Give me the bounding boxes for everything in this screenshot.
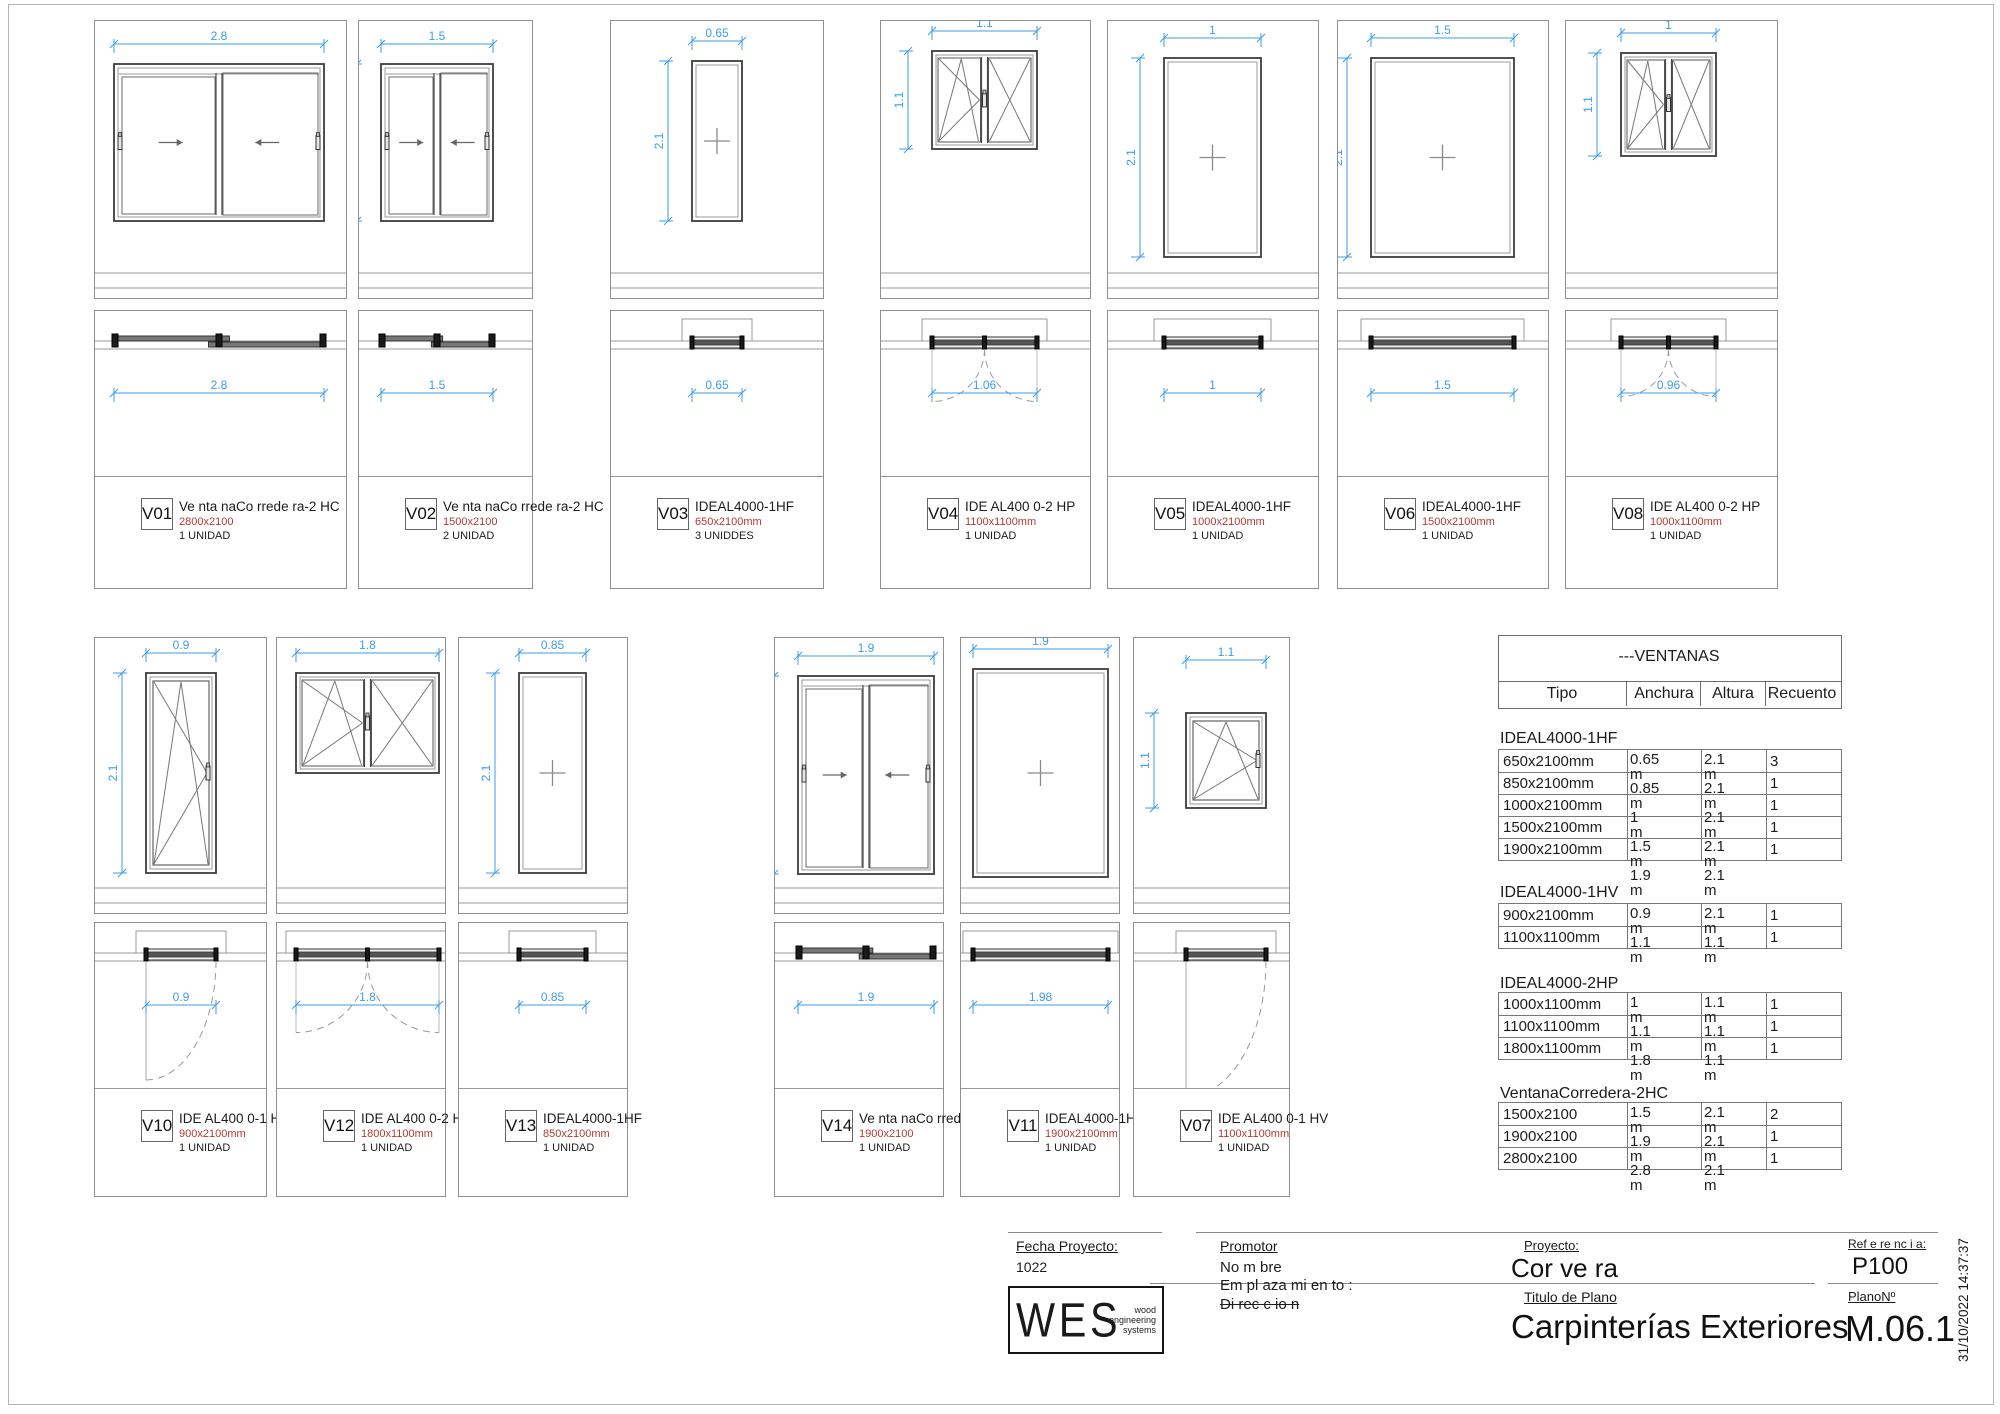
elevation-view-V13: 0.852.1 (458, 637, 628, 914)
tipo-cell: 1100x1100mm (1503, 1018, 1600, 1035)
svg-text:2.1: 2.1 (1338, 149, 1345, 166)
product-size: 1900x2100 (859, 1128, 913, 1140)
tipo-cell: 1100x1100mm (1503, 929, 1600, 946)
plan-view-V04: 1.06V04IDE AL400 0-2 HP1100x1100mm1 UNID… (880, 310, 1091, 589)
logo-tagline-line: engineering (1109, 1315, 1156, 1325)
column-divider (1627, 993, 1628, 1059)
drawing-sheet: 2.82.12.8V01Ve nta naCo rrede ra-2 HC280… (0, 0, 2000, 1414)
svg-text:2.1: 2.1 (1124, 149, 1138, 166)
tipo-cell: 900x2100mm (1503, 907, 1594, 924)
product-name: IDE AL400 0-2 HP (965, 499, 1075, 514)
recuento-cell: 1 (1770, 907, 1778, 924)
product-name: Ve nta naCo rrede ra-2 HC (443, 499, 604, 514)
elevation-view-V05: 12.1 (1107, 20, 1319, 299)
tipo-cell: 1900x2100 (1503, 1128, 1577, 1145)
proyecto-label: Proyecto: (1524, 1238, 1579, 1253)
elevation-view-V11: 1.92.1 (960, 637, 1120, 914)
product-units: 1 UNIDAD (179, 1142, 230, 1154)
row-divider (1499, 816, 1841, 817)
row-divider (1499, 1147, 1841, 1148)
label-divider (611, 476, 823, 477)
label-divider (1134, 1088, 1289, 1089)
panel-tag: V08 (1612, 498, 1644, 530)
product-size: 1800x1100mm (361, 1128, 433, 1140)
referencia-label: Ref e re nc i a: (1848, 1237, 1926, 1251)
elevation-view-V04: 1.11.1 (880, 20, 1091, 299)
column-divider (1701, 993, 1702, 1059)
product-units: 1 UNIDAD (543, 1142, 594, 1154)
svg-text:1.9: 1.9 (858, 990, 875, 1004)
svg-text:0.9: 0.9 (173, 638, 190, 652)
tipo-cell: 2800x2100 (1503, 1150, 1577, 1167)
svg-text:0.85: 0.85 (541, 990, 565, 1004)
recuento-cell: 2 (1770, 1106, 1778, 1123)
svg-text:1.1: 1.1 (1218, 645, 1235, 659)
ventanas-table: ---VENTANAS Tipo Anchura Altura Recuento… (1498, 635, 1842, 1255)
product-units: 2 UNIDAD (443, 530, 494, 542)
plan-view-V03: 0.65V03IDEAL4000-1HF650x2100mm3 UNIDDES (610, 310, 824, 589)
svg-text:1: 1 (1209, 23, 1216, 37)
product-name: Ve nta naCo rrede ra-2 HC (179, 499, 340, 514)
direccion-label: Di rec c io n (1220, 1296, 1299, 1313)
recuento-cell: 1 (1770, 819, 1778, 836)
tipo-cell: 1000x1100mm (1503, 996, 1601, 1013)
wes-logo: WES wood engineering systems (1008, 1286, 1164, 1354)
column-divider (1627, 1103, 1628, 1169)
table-group-name: IDEAL4000-1HV (1500, 884, 1618, 902)
elevation-view-V12: 1.81.1 (276, 637, 446, 914)
titulo-plano-value: Carpinterías Exteriores (1511, 1308, 1848, 1346)
svg-text:1.5: 1.5 (429, 29, 446, 43)
product-size: 1000x2100mm (1192, 516, 1265, 528)
product-size: 900x2100mm (179, 1128, 246, 1140)
table-group-box: 650x2100mm3850x2100mm11000x2100mm11500x2… (1498, 749, 1842, 861)
column-divider (1627, 750, 1628, 860)
row-divider (1499, 926, 1841, 927)
product-name: IDEAL4000-1HF (1192, 499, 1291, 514)
svg-text:0.9: 0.9 (173, 990, 190, 1004)
label-divider (459, 1088, 627, 1089)
timestamp: 31/10/2022 14:37:37 (1956, 1238, 1971, 1362)
product-size: 1900x2100mm (1045, 1128, 1118, 1140)
elevation-view-V08: 11.1 (1565, 20, 1778, 299)
product-name: IDE AL400 0-2 HP (361, 1111, 471, 1126)
svg-text:1.5: 1.5 (1434, 378, 1451, 392)
column-header-anchura: Anchura (1626, 685, 1702, 703)
product-units: 1 UNIDAD (361, 1142, 412, 1154)
product-units: 1 UNIDAD (1045, 1142, 1096, 1154)
recuento-cell: 1 (1770, 996, 1778, 1013)
panel-tag: V11 (1007, 1110, 1039, 1142)
panel-tag: V06 (1384, 498, 1416, 530)
plano-numero-label: PlanoNº (1848, 1289, 1895, 1304)
recuento-cell: 1 (1770, 841, 1778, 858)
product-units: 1 UNIDAD (1422, 530, 1473, 542)
column-divider (1766, 750, 1767, 860)
fecha-proyecto-value: 1022 (1016, 1259, 1047, 1275)
row-divider (1499, 772, 1841, 773)
header-divider (1765, 682, 1766, 706)
svg-text:0.85: 0.85 (541, 638, 565, 652)
panel-tag: V13 (505, 1110, 537, 1142)
svg-text:2.1: 2.1 (106, 764, 120, 781)
product-size: 1500x2100mm (1422, 516, 1495, 528)
title-block-rule (1196, 1232, 1938, 1233)
plan-view-V12: 1.8V12IDE AL400 0-2 HP1800x1100mm1 UNIDA… (276, 922, 446, 1197)
product-name: IDE AL400 0-1 HV (179, 1111, 289, 1126)
tipo-cell: 1000x2100mm (1503, 797, 1602, 814)
label-divider (359, 476, 532, 477)
svg-text:1.06: 1.06 (973, 378, 997, 392)
header-divider (1626, 682, 1627, 706)
panel-tag: V10 (141, 1110, 173, 1142)
row-divider (1499, 794, 1841, 795)
label-divider (95, 476, 346, 477)
proyecto-value: Cor ve ra (1511, 1253, 1618, 1284)
panel-tag: V04 (927, 498, 959, 530)
product-size: 1500x2100 (443, 516, 497, 528)
product-units: 1 UNIDAD (1218, 1142, 1269, 1154)
product-units: 3 UNIDDES (695, 530, 754, 542)
elevation-view-V02: 1.52.1 (358, 20, 533, 299)
tipo-cell: 650x2100mm (1503, 753, 1594, 770)
recuento-cell: 1 (1770, 929, 1778, 946)
elevation-view-V03: 0.652.1 (610, 20, 824, 299)
svg-text:2.8: 2.8 (211, 378, 228, 392)
recuento-cell: 3 (1770, 753, 1778, 770)
titulo-plano-label: Titulo de Plano (1524, 1289, 1617, 1305)
plan-view-V05: 1V05IDEAL4000-1HF1000x2100mm1 UNIDAD (1107, 310, 1319, 589)
column-divider (1701, 750, 1702, 860)
column-header-altura: Altura (1702, 685, 1764, 703)
svg-text:1.5: 1.5 (1434, 23, 1451, 37)
tipo-cell: 1500x2100 (1503, 1106, 1577, 1123)
svg-text:1.1: 1.1 (976, 21, 993, 30)
promotor-label: Promotor (1220, 1238, 1278, 1254)
logo-tagline-line: wood (1109, 1305, 1156, 1315)
table-group-name: IDEAL4000-1HF (1500, 730, 1617, 748)
tipo-cell: 1800x1100mm (1503, 1040, 1601, 1057)
product-size: 1000x1100mm (1650, 516, 1722, 528)
recuento-cell: 1 (1770, 775, 1778, 792)
row-divider (1499, 1015, 1841, 1016)
product-size: 1100x1100mm (965, 516, 1036, 528)
product-units: 1 UNIDAD (859, 1142, 910, 1154)
svg-text:0.96: 0.96 (1657, 378, 1681, 392)
plano-numero-value: M.06.1 (1845, 1308, 1955, 1350)
column-header-recuento: Recuento (1764, 685, 1840, 703)
elevation-view-V01: 2.82.1 (94, 20, 347, 299)
label-divider (1338, 476, 1548, 477)
svg-text:1.9: 1.9 (1032, 638, 1049, 648)
column-divider (1701, 1103, 1702, 1169)
product-units: 1 UNIDAD (1192, 530, 1243, 542)
product-size: 2800x2100 (179, 516, 233, 528)
row-divider (1499, 838, 1841, 839)
plan-view-V13: 0.85V13IDEAL4000-1HF850x2100mm1 UNIDAD (458, 922, 628, 1197)
label-divider (277, 1088, 445, 1089)
plan-view-V07: V07IDE AL400 0-1 HV1100x1100mm1 UNIDAD (1133, 922, 1290, 1197)
tipo-cell: 1500x2100mm (1503, 819, 1602, 836)
promotor-value: No m bre (1220, 1259, 1282, 1276)
elevation-view-V07: 1.11.1 (1133, 637, 1290, 914)
label-divider (961, 1088, 1119, 1089)
plan-view-V01: 2.8V01Ve nta naCo rrede ra-2 HC2800x2100… (94, 310, 347, 589)
svg-text:1: 1 (1665, 21, 1672, 32)
svg-text:0.65: 0.65 (705, 26, 729, 40)
table-group-box: 900x2100mm11100x1100mm1 (1498, 903, 1842, 949)
referencia-value: P100 (1852, 1253, 1908, 1281)
table-group-name: VentanaCorredera-2HC (1500, 1085, 1668, 1103)
svg-text:2.1: 2.1 (479, 764, 493, 781)
product-name: IDE AL400 0-2 HP (1650, 499, 1760, 514)
tipo-cell: 1900x2100mm (1503, 841, 1602, 858)
product-name: IDEAL4000-1HF (1422, 499, 1521, 514)
row-divider (1499, 1125, 1841, 1126)
row-divider (1499, 1037, 1841, 1038)
product-size: 850x2100mm (543, 1128, 610, 1140)
product-name: IDEAL4000-1HF (695, 499, 794, 514)
svg-text:1.9: 1.9 (858, 641, 875, 655)
product-size: 1100x1100mm (1218, 1128, 1289, 1140)
product-name: IDEAL4000-1HF (543, 1111, 642, 1126)
plan-view-V08: 0.96V08IDE AL400 0-2 HP1000x1100mm1 UNID… (1565, 310, 1778, 589)
recuento-cell: 1 (1770, 1040, 1778, 1057)
svg-text:1.1: 1.1 (1138, 752, 1152, 769)
svg-text:1.1: 1.1 (1581, 96, 1595, 113)
panel-tag: V14 (821, 1110, 853, 1142)
plan-view-V10: 0.9V10IDE AL400 0-1 HV900x2100mm1 UNIDAD (94, 922, 267, 1197)
svg-text:2.8: 2.8 (211, 29, 228, 43)
plan-view-V06: 1.5V06IDEAL4000-1HF1500x2100mm1 UNIDAD (1337, 310, 1549, 589)
product-name: IDEAL4000-1HF (1045, 1111, 1144, 1126)
recuento-cell: 1 (1770, 1018, 1778, 1035)
column-divider (1766, 993, 1767, 1059)
logo-tagline-line: systems (1109, 1325, 1156, 1335)
fecha-proyecto-label: Fecha Proyecto: (1016, 1238, 1118, 1254)
svg-text:2.1: 2.1 (652, 132, 666, 149)
elevation-view-V14: 1.92.1 (774, 637, 944, 914)
tipo-cell: 850x2100mm (1503, 775, 1594, 792)
panel-tag: V02 (405, 498, 437, 530)
svg-text:1: 1 (1209, 378, 1216, 392)
label-divider (1108, 476, 1318, 477)
ventanas-table-title: ---VENTANAS (1498, 648, 1840, 666)
label-divider (881, 476, 1090, 477)
svg-text:1.8: 1.8 (359, 638, 376, 652)
recuento-cell: 1 (1770, 797, 1778, 814)
panel-tag: V07 (1180, 1110, 1212, 1142)
plan-view-V02: 1.5V02Ve nta naCo rrede ra-2 HC1500x2100… (358, 310, 533, 589)
header-divider (1700, 682, 1701, 706)
table-group-box: 1000x1100mm11100x1100mm11800x1100mm1 (1498, 992, 1842, 1060)
product-units: 1 UNIDAD (1650, 530, 1701, 542)
table-group-box: 1500x210021900x210012800x21001 (1498, 1102, 1842, 1170)
column-divider (1766, 1103, 1767, 1169)
title-block-rule (1828, 1283, 1938, 1284)
panel-tag: V03 (657, 498, 689, 530)
panel-tag: V12 (323, 1110, 355, 1142)
column-header-tipo: Tipo (1498, 685, 1626, 703)
recuento-cell: 1 (1770, 1128, 1778, 1145)
svg-text:1.98: 1.98 (1029, 990, 1053, 1004)
label-divider (95, 1088, 266, 1089)
panel-tag: V01 (141, 498, 173, 530)
label-divider (775, 1088, 943, 1089)
title-block-rule (1008, 1232, 1162, 1233)
emplazamiento-label: Em pl aza mi en to : (1220, 1277, 1353, 1294)
svg-text:1.1: 1.1 (892, 91, 906, 108)
table-group-name: IDEAL4000-2HP (1500, 975, 1618, 993)
recuento-cell: 1 (1770, 1150, 1778, 1167)
wes-logo-text: WES (1016, 1292, 1121, 1348)
product-units: 1 UNIDAD (965, 530, 1016, 542)
elevation-view-V10: 0.92.1 (94, 637, 267, 914)
product-units: 1 UNIDAD (179, 530, 230, 542)
plan-view-V11: 1.98V11IDEAL4000-1HF1900x2100mm1 UNIDAD (960, 922, 1120, 1197)
svg-text:1.8: 1.8 (359, 990, 376, 1004)
panel-tag: V05 (1154, 498, 1186, 530)
elevation-view-V06: 1.52.1 (1337, 20, 1549, 299)
product-name: IDE AL400 0-1 HV (1218, 1111, 1328, 1126)
svg-text:1.5: 1.5 (429, 378, 446, 392)
product-size: 650x2100mm (695, 516, 762, 528)
svg-text:0.65: 0.65 (705, 378, 729, 392)
wes-logo-tagline: wood engineering systems (1109, 1305, 1156, 1335)
label-divider (1566, 476, 1777, 477)
plan-view-V14: 1.9V14Ve nta naCo rrede ra-2 HC1900x2100… (774, 922, 944, 1197)
